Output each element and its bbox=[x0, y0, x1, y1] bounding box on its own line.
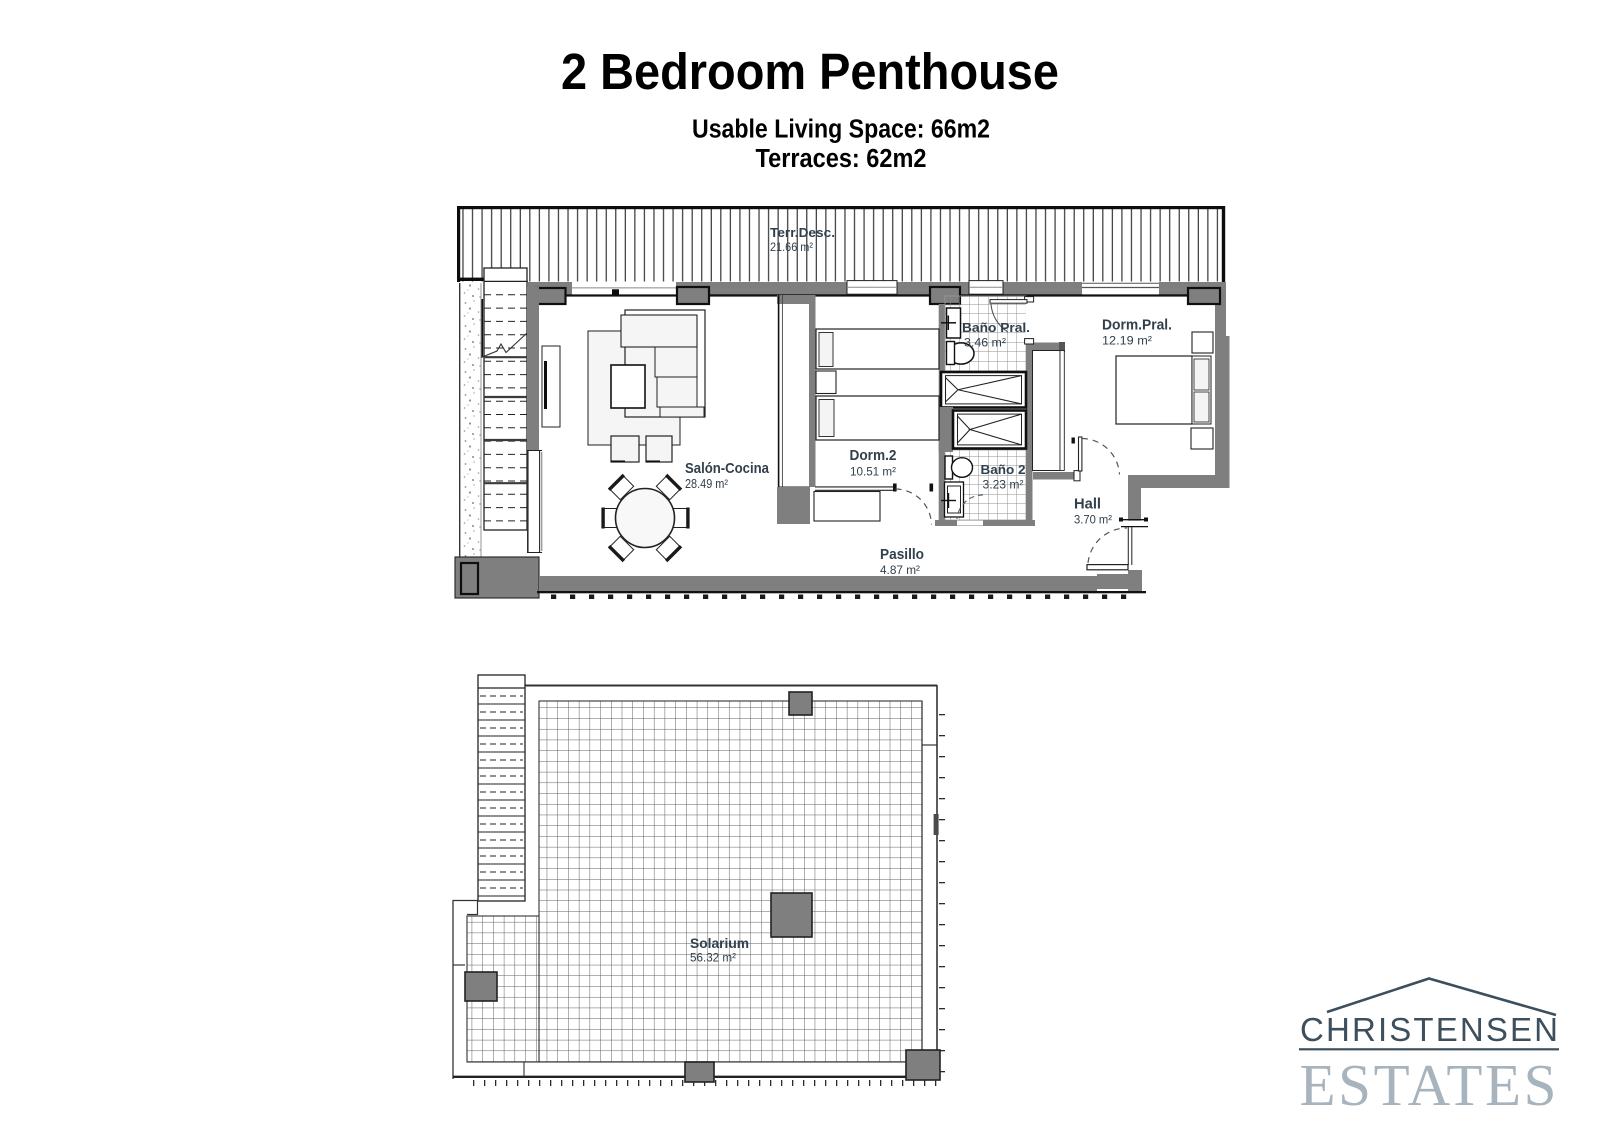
svg-text:12.19 m²: 12.19 m² bbox=[1102, 334, 1152, 348]
svg-text:Baño 2: Baño 2 bbox=[981, 462, 1026, 477]
svg-text:Terraces: 62m2: Terraces: 62m2 bbox=[756, 145, 927, 173]
svg-text:Baño Pral.: Baño Pral. bbox=[962, 320, 1030, 335]
svg-text:3.70 m²: 3.70 m² bbox=[1074, 513, 1112, 527]
svg-text:4.87 m²: 4.87 m² bbox=[880, 563, 920, 577]
svg-text:56.32 m²: 56.32 m² bbox=[690, 951, 736, 965]
svg-text:2 Bedroom Penthouse: 2 Bedroom Penthouse bbox=[561, 43, 1059, 100]
svg-text:28.49 m²: 28.49 m² bbox=[685, 477, 728, 491]
svg-text:ESTATES: ESTATES bbox=[1300, 1052, 1557, 1118]
svg-text:CHRISTENSEN: CHRISTENSEN bbox=[1300, 1011, 1558, 1048]
svg-text:3.46 m²: 3.46 m² bbox=[964, 336, 1006, 350]
svg-text:Hall: Hall bbox=[1074, 497, 1101, 513]
svg-text:21.66 m²: 21.66 m² bbox=[770, 240, 813, 254]
svg-text:Usable Living Space: 66m2: Usable Living Space: 66m2 bbox=[692, 116, 990, 144]
svg-text:3.23 m²: 3.23 m² bbox=[983, 478, 1024, 492]
svg-text:Dorm.Pral.: Dorm.Pral. bbox=[1102, 318, 1172, 334]
svg-text:Terr.Desc.: Terr.Desc. bbox=[770, 225, 835, 240]
svg-text:Solarium: Solarium bbox=[690, 935, 749, 951]
svg-text:Dorm.2: Dorm.2 bbox=[850, 448, 897, 464]
svg-text:10.51 m²: 10.51 m² bbox=[850, 465, 896, 479]
svg-text:Pasillo: Pasillo bbox=[880, 546, 924, 563]
svg-text:Salón-Cocina: Salón-Cocina bbox=[685, 460, 770, 477]
